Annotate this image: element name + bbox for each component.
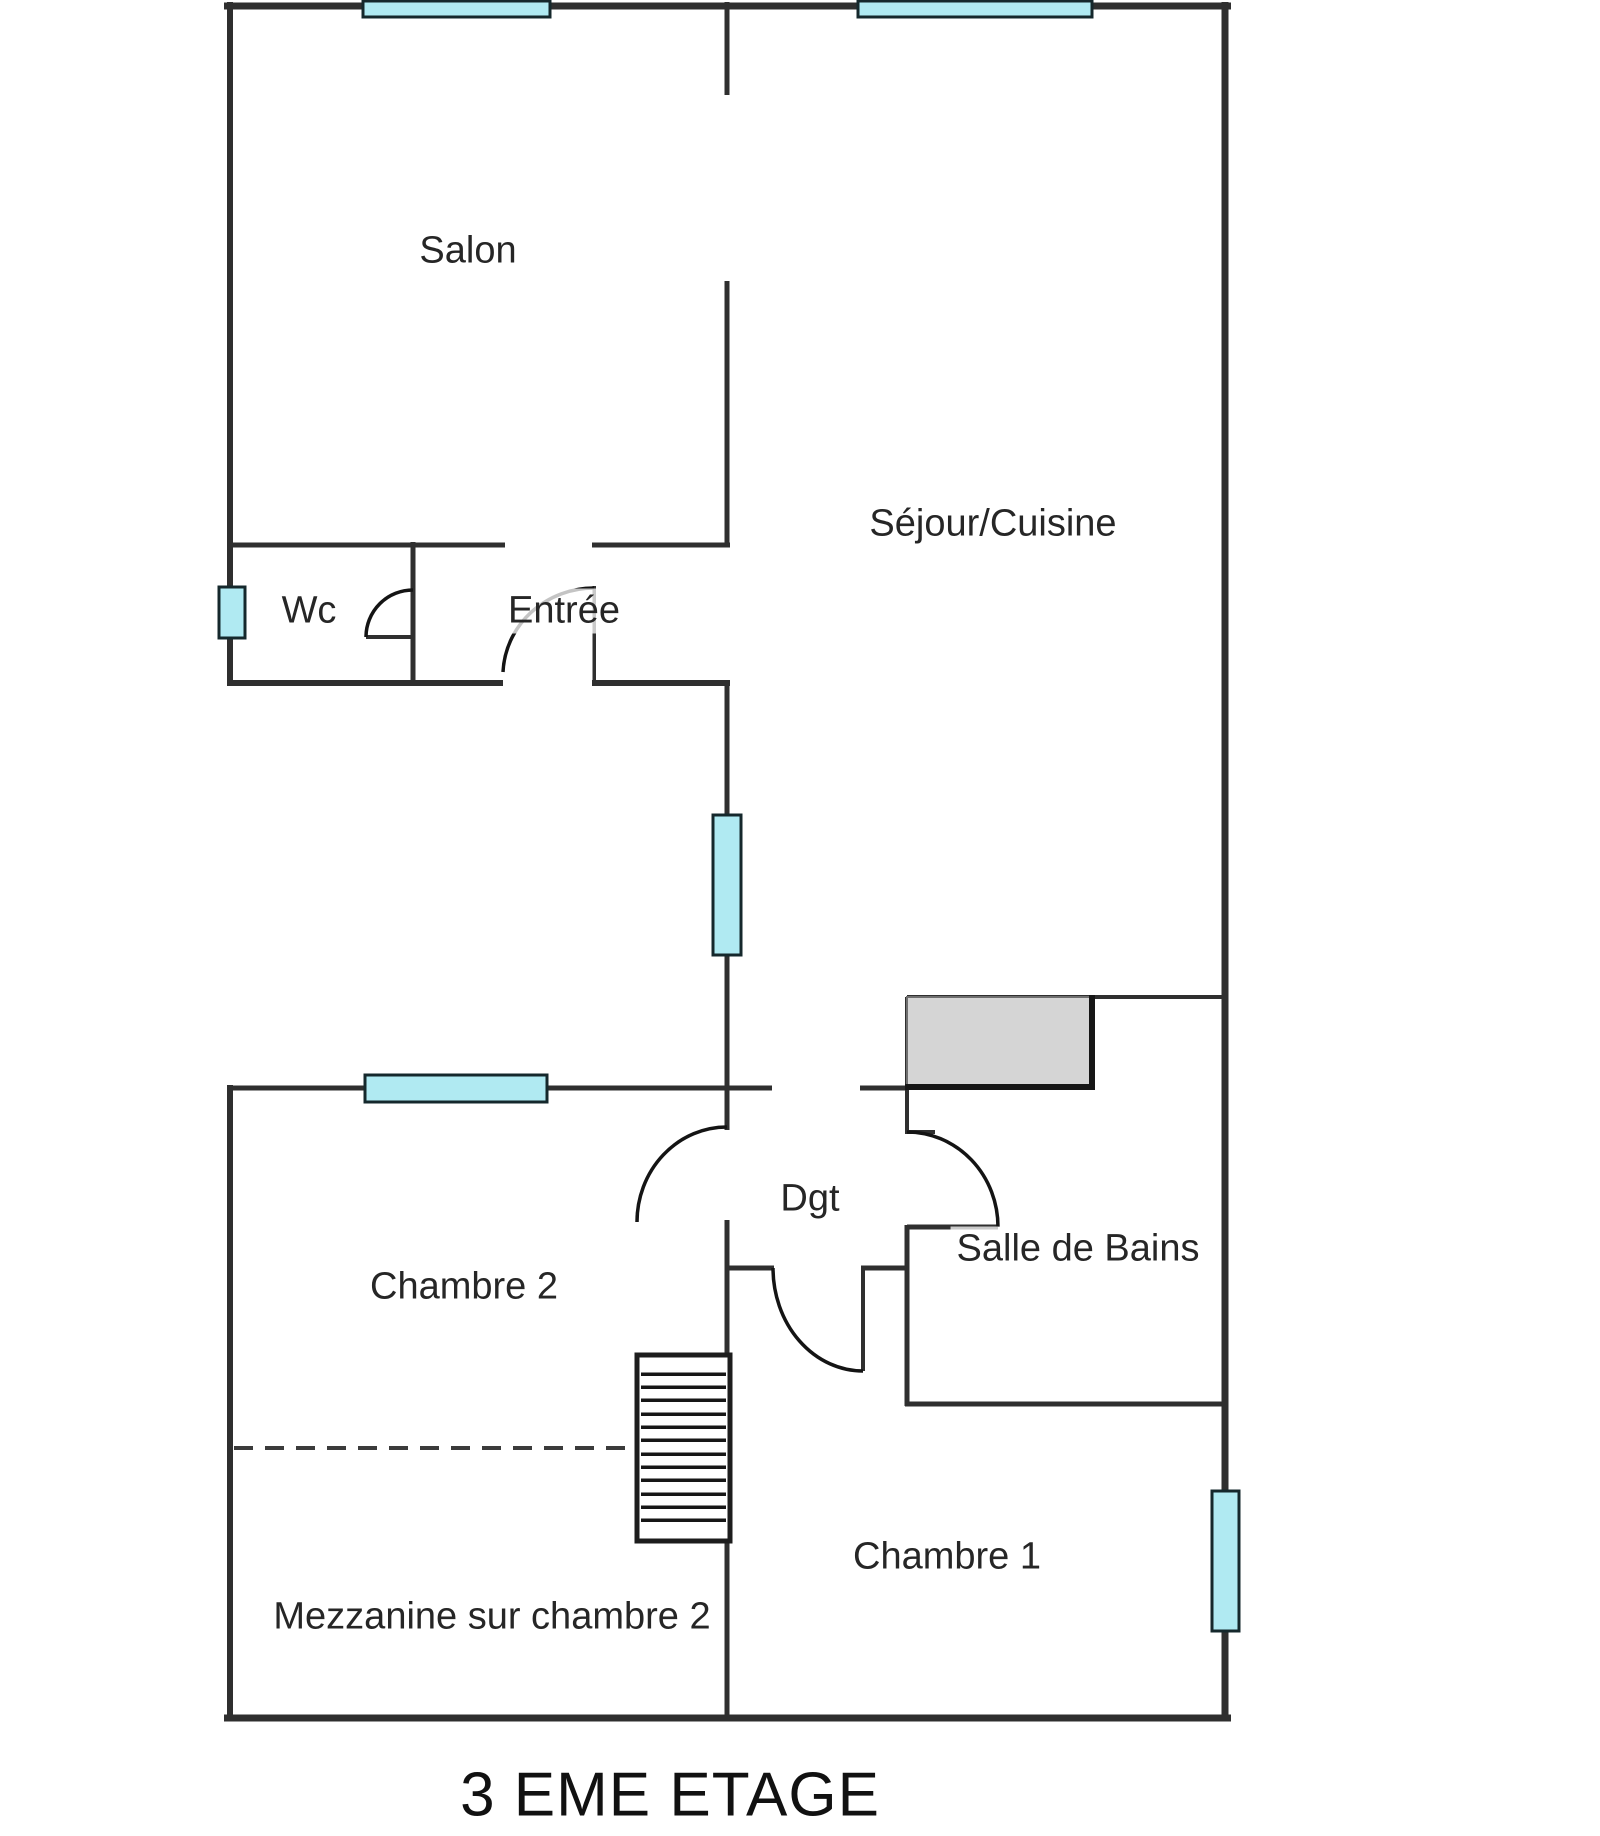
window-chambre2-top bbox=[365, 1075, 547, 1102]
window-salon-top bbox=[363, 1, 550, 17]
window-corridor-left bbox=[713, 815, 741, 955]
stairs bbox=[637, 1355, 730, 1541]
room-label-sejour-cuisine: Séjour/Cuisine bbox=[863, 502, 1122, 547]
door-arc-chambre2 bbox=[637, 1127, 727, 1222]
room-label-chambre-1: Chambre 1 bbox=[847, 1535, 1047, 1580]
floor-title: 3 EME ETAGE bbox=[460, 1760, 880, 1831]
room-label-chambre-2: Chambre 2 bbox=[364, 1265, 564, 1310]
floor-plan-drawing bbox=[0, 0, 1600, 1836]
room-label-mezzanine: Mezzanine sur chambre 2 bbox=[267, 1595, 716, 1640]
room-label-dgt: Dgt bbox=[774, 1177, 845, 1222]
room-label-salon: Salon bbox=[413, 229, 522, 274]
door-arc-salle-de-bains bbox=[907, 1132, 998, 1227]
room-label-entree: Entrée bbox=[502, 589, 626, 634]
shower-fixture bbox=[907, 997, 1092, 1087]
window-sejour-top bbox=[858, 1, 1092, 17]
room-label-salle-de-bains: Salle de Bains bbox=[951, 1227, 1206, 1272]
door-arc-wc bbox=[366, 590, 413, 637]
room-label-wc: Wc bbox=[276, 589, 343, 634]
door-arc-chambre1 bbox=[773, 1268, 863, 1371]
floor-plan: Salon Séjour/Cuisine Wc Entrée Dgt Salle… bbox=[0, 0, 1600, 1836]
window-wc-left bbox=[219, 587, 245, 638]
window-chambre1-right bbox=[1212, 1491, 1239, 1631]
